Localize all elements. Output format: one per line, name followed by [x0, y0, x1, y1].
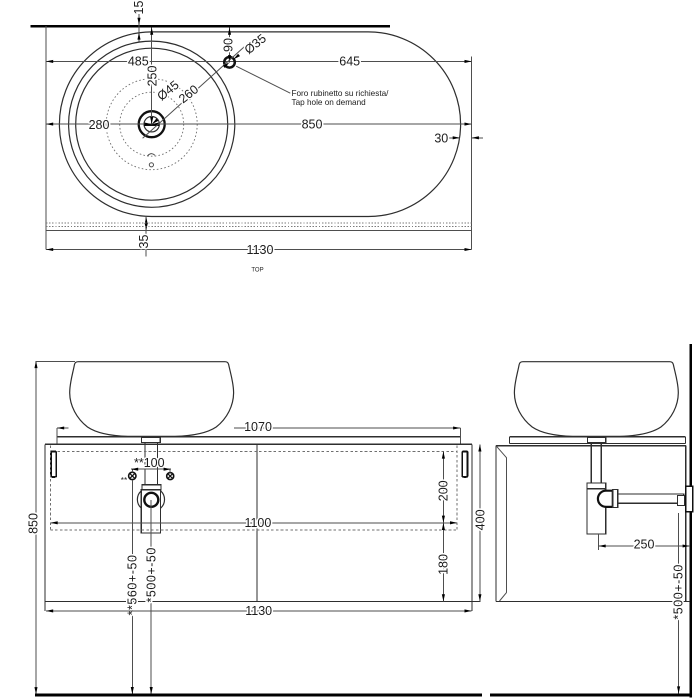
svg-text:**: ** — [121, 476, 128, 485]
svg-text:1070: 1070 — [244, 420, 272, 434]
svg-text:850: 850 — [27, 513, 41, 534]
svg-text:180: 180 — [437, 554, 451, 575]
svg-text:**560+-50: **560+-50 — [125, 555, 139, 616]
svg-text:Foro rubinetto su richiesta/: Foro rubinetto su richiesta/ — [292, 89, 390, 98]
svg-text:250: 250 — [634, 538, 655, 552]
svg-text:*500+-50: *500+-50 — [671, 564, 685, 620]
svg-text:15: 15 — [132, 1, 146, 15]
svg-text:280: 280 — [89, 118, 110, 132]
svg-text:850: 850 — [302, 117, 323, 131]
svg-text:200: 200 — [437, 480, 451, 501]
svg-text:Tap hole on demand: Tap hole on demand — [292, 98, 367, 107]
svg-text:1130: 1130 — [247, 243, 274, 257]
svg-text:90: 90 — [222, 38, 236, 52]
svg-text:*500+-50: *500+-50 — [144, 547, 158, 603]
svg-text:645: 645 — [339, 55, 360, 69]
svg-text:250: 250 — [146, 66, 160, 87]
svg-text:1100: 1100 — [244, 516, 271, 530]
svg-text:400: 400 — [474, 509, 488, 530]
svg-text:**100: **100 — [134, 456, 165, 470]
svg-text:35: 35 — [137, 235, 151, 249]
svg-text:TOP: TOP — [251, 268, 263, 274]
svg-text:30: 30 — [434, 131, 448, 145]
svg-text:1130: 1130 — [245, 604, 272, 618]
